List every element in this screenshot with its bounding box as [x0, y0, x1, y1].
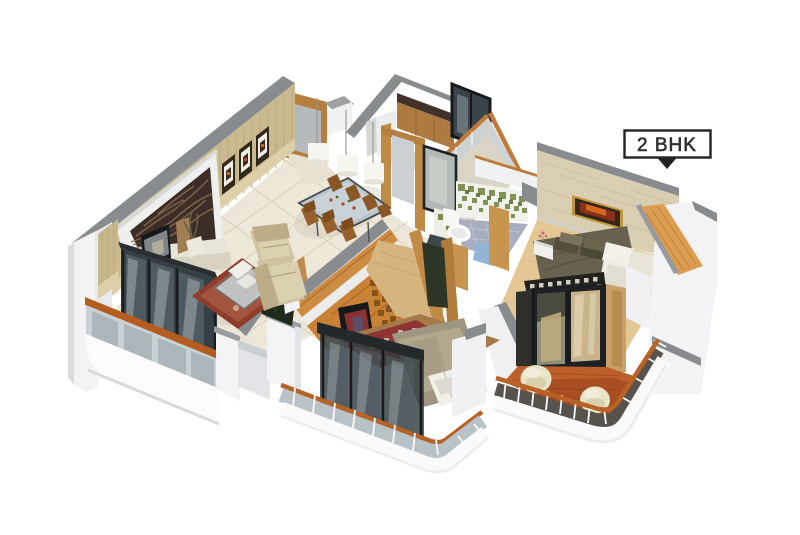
svg-text:2 BHK: 2 BHK: [637, 135, 697, 156]
